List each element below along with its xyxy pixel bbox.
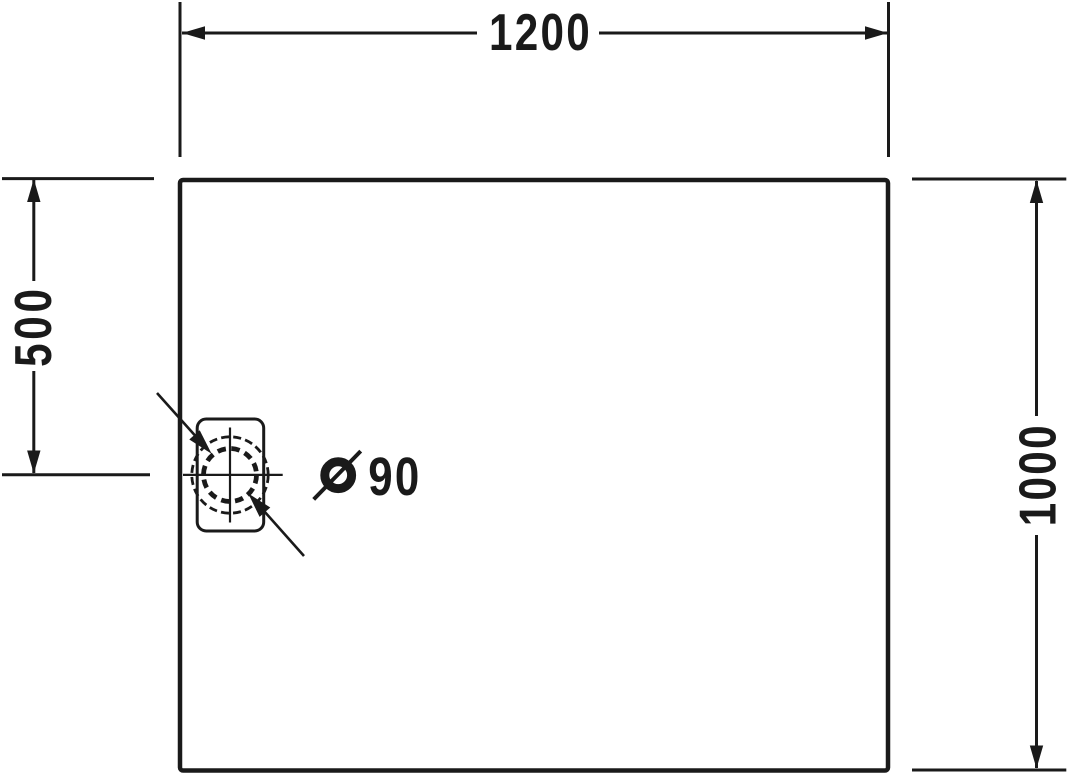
svg-text:1200: 1200 [489,3,592,61]
svg-text:90: 90 [368,448,421,507]
svg-text:1000: 1000 [1009,423,1067,526]
svg-text:500: 500 [4,285,62,367]
